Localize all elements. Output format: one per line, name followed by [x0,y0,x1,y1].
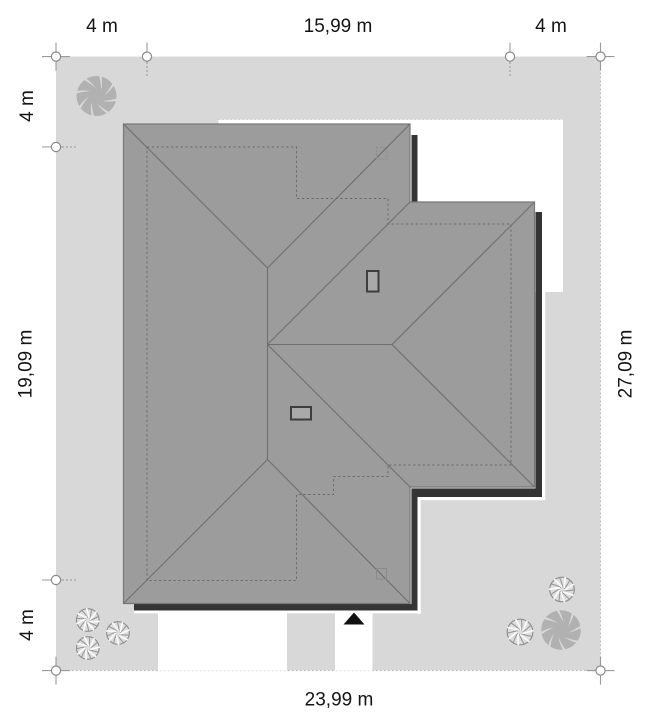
svg-text:19,09 m: 19,09 m [15,330,36,399]
svg-text:4 m: 4 m [17,90,38,122]
svg-text:27,09 m: 27,09 m [616,330,637,399]
svg-text:4 m: 4 m [17,609,38,641]
svg-text:4 m: 4 m [535,16,567,37]
svg-text:23,99 m: 23,99 m [305,690,374,711]
svg-text:4 m: 4 m [86,16,118,37]
svg-text:15,99 m: 15,99 m [304,16,373,37]
